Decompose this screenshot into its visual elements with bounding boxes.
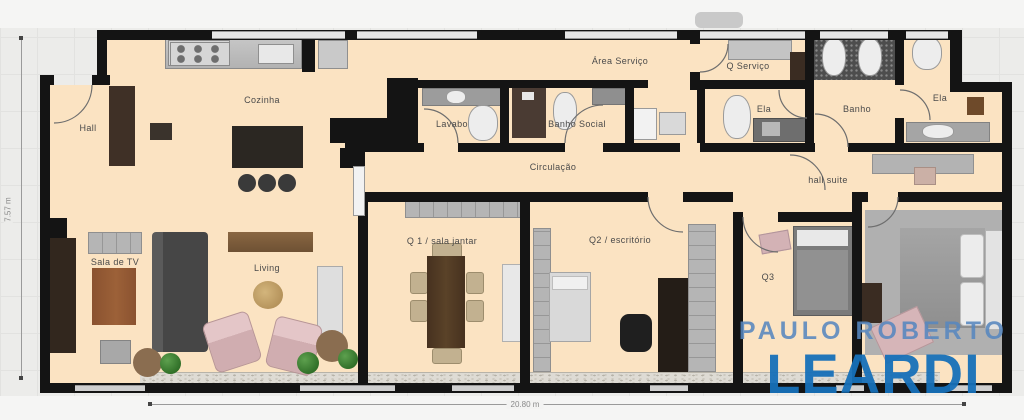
room-label-ela-1: Ela	[757, 104, 771, 114]
door-arc	[779, 90, 807, 118]
room-label-circulacao: Circulação	[530, 162, 577, 172]
dimension-line-vertical	[21, 38, 22, 380]
room-label-banho-social: Banho Social	[548, 119, 606, 129]
door-arc	[743, 217, 778, 252]
room-label-cozinha: Cozinha	[244, 95, 280, 105]
room-label-q3: Q3	[762, 272, 775, 282]
room-label-q2: Q2 / escritório	[589, 235, 651, 245]
room-label-living: Living	[254, 263, 280, 273]
dimension-tick	[19, 376, 23, 380]
watermark: PAULO ROBERTO LEARDI	[739, 319, 1008, 402]
dimension-tick	[148, 402, 152, 406]
watermark-line1: PAULO ROBERTO	[739, 319, 1008, 344]
door-arc	[868, 197, 898, 227]
door-arc	[815, 114, 848, 147]
dimension-label-width: 20.80 m	[507, 400, 544, 409]
door-arc	[648, 197, 683, 232]
dimension-tick	[19, 36, 23, 40]
room-label-area-servico: Área Serviço	[592, 56, 648, 66]
room-label-hall-suite: hall suite	[808, 175, 848, 185]
room-label-q-servico: Q Serviço	[726, 61, 769, 71]
dimension-label-height: 7.57 m	[4, 194, 13, 224]
watermark-line2: LEARDI	[739, 346, 1008, 402]
floor-plan-canvas: Hall Cozinha Área Serviço Q Serviço Lava…	[0, 0, 1024, 420]
room-label-ela-2: Ela	[933, 93, 947, 103]
room-label-lavabo: Lavabo	[436, 119, 468, 129]
room-label-hall: Hall	[79, 123, 96, 133]
room-label-sala-tv: Sala de TV	[91, 257, 139, 267]
door-arc	[54, 85, 92, 123]
door-arc	[700, 44, 728, 72]
room-label-q1: Q 1 / sala jantar	[407, 236, 477, 246]
room-label-banho: Banho	[843, 104, 871, 114]
door-arc	[900, 90, 930, 120]
